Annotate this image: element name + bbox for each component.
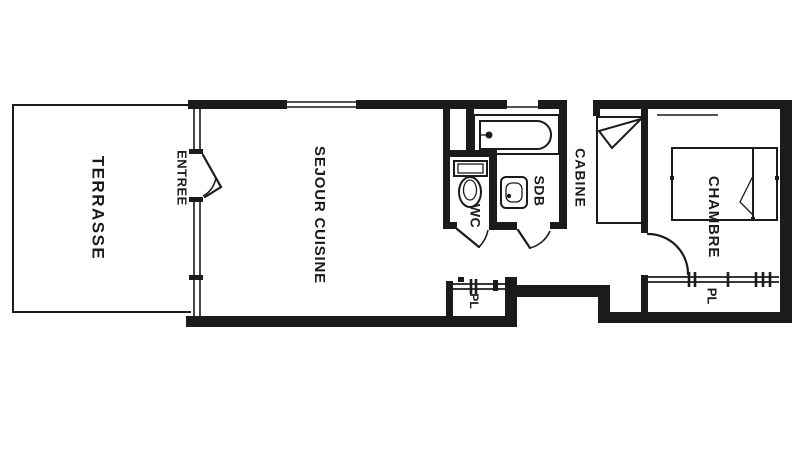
sdb-label: SDB [531, 175, 547, 206]
chambre-door-arc [648, 234, 688, 274]
floor-plan-canvas: TERRASSE ENTREE SEJOUR CUISINE WC SDB CA… [0, 0, 800, 452]
wc-door [457, 229, 488, 247]
window-terrasse-wall [194, 109, 200, 317]
floor-plan: TERRASSE ENTREE SEJOUR CUISINE WC SDB CA… [0, 0, 800, 452]
toilet [454, 161, 487, 207]
sdb-door [518, 230, 550, 248]
window-sejour-top [287, 102, 356, 107]
chambre-label: CHAMBRE [705, 176, 722, 258]
entree-label: ENTREE [175, 150, 190, 206]
washbasin-tap [507, 194, 511, 198]
washbasin [501, 177, 527, 208]
closet-chambre-sliding-door [648, 272, 779, 287]
bathtub [474, 115, 559, 154]
closet-sejour-sliding-door [453, 277, 508, 294]
cabine-bed [597, 117, 643, 223]
placard-sejour-label: PL [467, 293, 481, 308]
placard-chambre-label: PL [705, 288, 720, 305]
sejour-cuisine-label: SEJOUR CUISINE [311, 146, 328, 284]
cabine-bed-blanket-fold [599, 119, 641, 148]
bathtub-faucet [486, 132, 493, 139]
chambre-bed [670, 148, 779, 221]
cabine-label: CABINE [572, 148, 588, 208]
entree-door [203, 155, 221, 197]
chambre-bed-blanket-fold [740, 176, 753, 215]
terrasse-label: TERRASSE [89, 156, 108, 261]
wc-label: WC [467, 204, 483, 228]
